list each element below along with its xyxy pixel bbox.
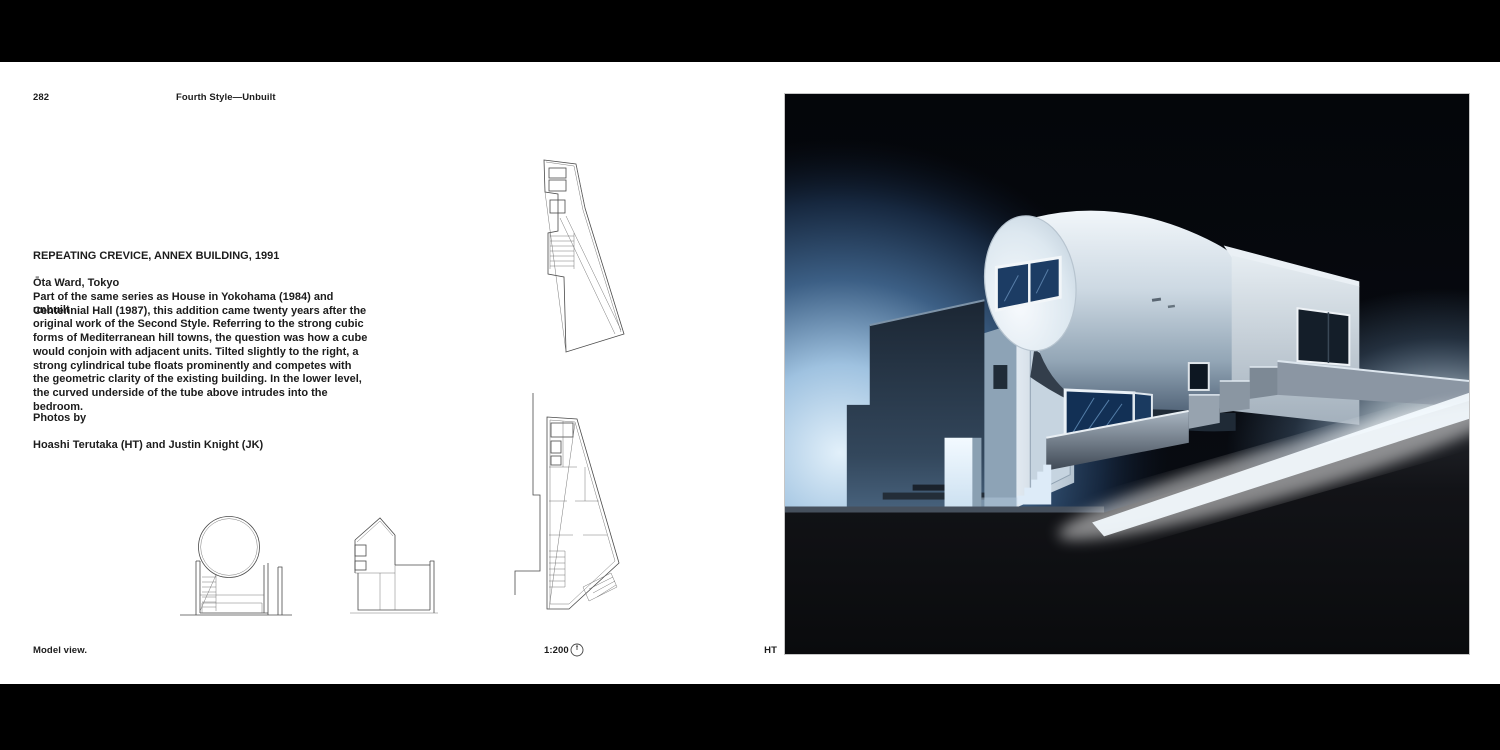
page-number: 282 <box>33 92 49 103</box>
model-photograph <box>784 93 1470 655</box>
photo-credits-block: Photos by Hoashi Terutaka (HT) and Justi… <box>33 398 263 466</box>
lit-pillar <box>945 438 973 507</box>
drawing-scale-label: 1:200 <box>544 645 569 656</box>
book-spread: 282 Fourth Style—Unbuilt REPEATING CREVI… <box>0 0 1500 750</box>
photo-credits-label: Photos by <box>33 412 263 426</box>
figure-caption: Model view. <box>33 645 87 656</box>
section-drawing-roof <box>342 505 444 627</box>
north-arrow-icon <box>570 643 584 657</box>
letterbox-bottom <box>0 684 1500 750</box>
project-title: REPEATING CREVICE, ANNEX BUILDING, 1991 <box>33 250 279 264</box>
photo-credit: HT <box>745 645 777 656</box>
small-window <box>1189 363 1209 390</box>
letterbox-top <box>0 0 1500 62</box>
project-location: Ōta Ward, Tokyo <box>33 277 279 291</box>
floor-plan-upper <box>533 156 665 362</box>
project-description: Part of the same series as House in Yoko… <box>33 291 369 414</box>
section-drawing-tube <box>176 503 298 629</box>
photo-credits-names: Hoashi Terutaka (HT) and Justin Knight (… <box>33 439 263 453</box>
running-header: Fourth Style—Unbuilt <box>176 92 276 103</box>
model-photo-art <box>785 94 1469 654</box>
floor-plan-lower <box>505 383 663 625</box>
model-center-prism <box>984 323 1016 516</box>
right-wall-doorway <box>1298 308 1350 365</box>
